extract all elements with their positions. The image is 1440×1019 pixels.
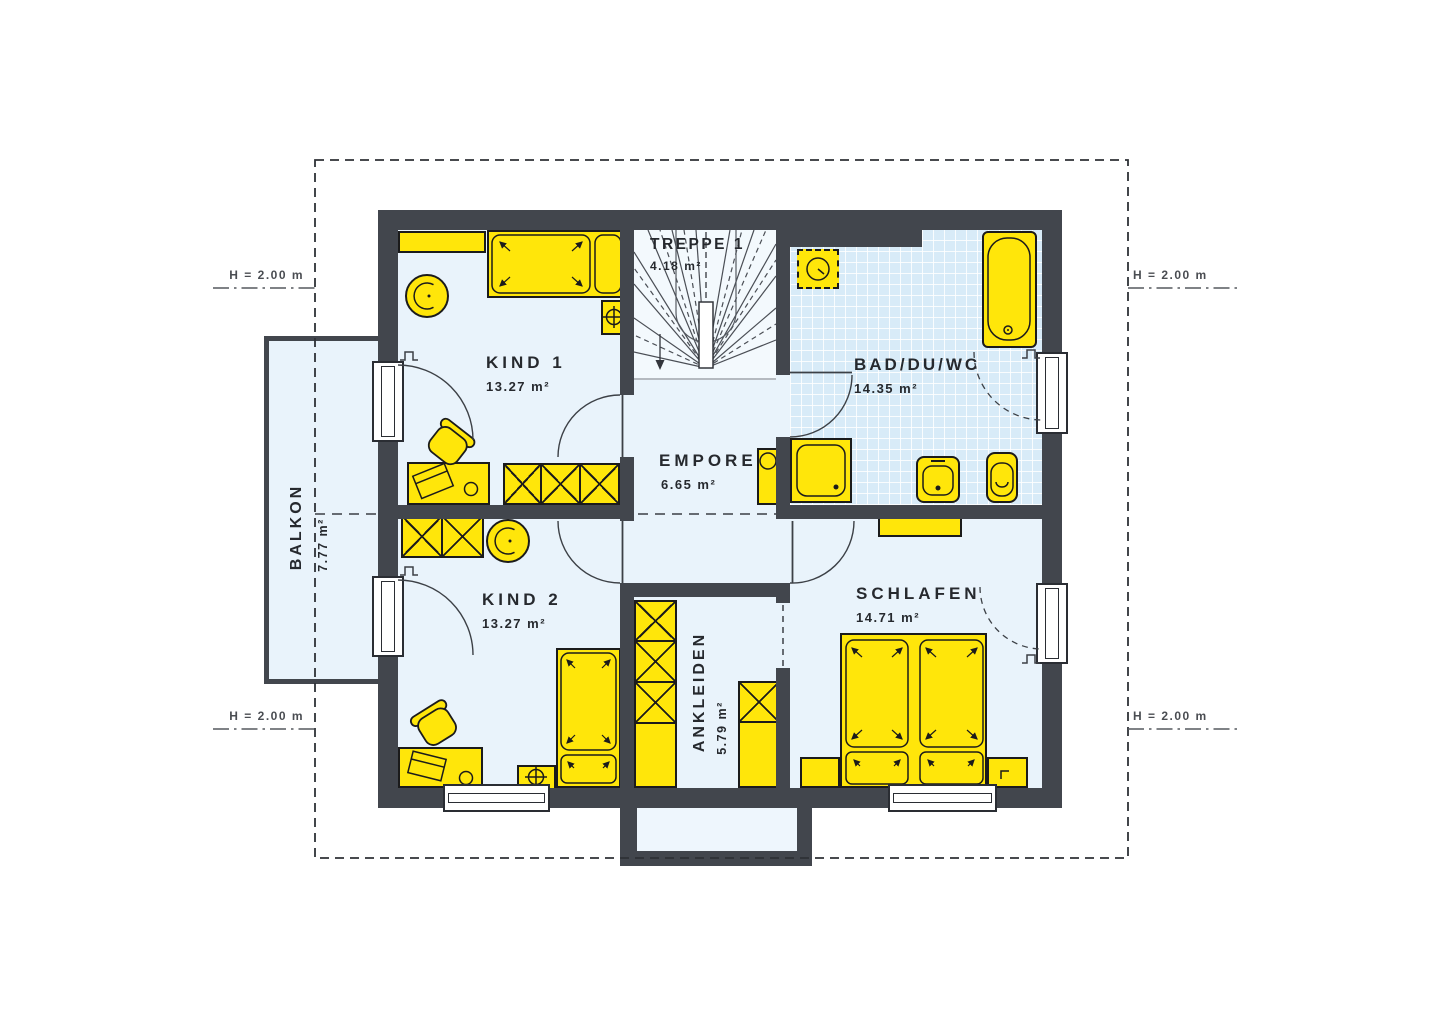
wall-kind-divider bbox=[378, 505, 620, 519]
floor-plan: TREPPE 1 4.18 m² KIND 1 13.27 m² BAD/DU/… bbox=[0, 0, 1440, 1019]
wall-outer-top bbox=[378, 210, 1062, 230]
chimney-inner bbox=[637, 808, 797, 851]
kind2-window-bottom bbox=[443, 784, 550, 812]
wall-ankleiden-left bbox=[620, 597, 634, 788]
room-label-kind1: KIND 1 bbox=[486, 353, 566, 373]
wall-ankleiden-top bbox=[620, 583, 790, 597]
schlafen-double-bed bbox=[840, 633, 987, 788]
wall-stair-left bbox=[620, 210, 634, 395]
bath-skylight bbox=[797, 249, 839, 289]
toilet bbox=[986, 452, 1018, 503]
room-area-empore: 6.65 m² bbox=[661, 477, 716, 492]
wall-south-divider bbox=[776, 505, 1042, 519]
wall-empore-left-mid bbox=[620, 457, 634, 521]
room-label-ankleiden: ANKLEIDEN bbox=[691, 632, 709, 752]
height-label-bottom-left: H = 2.00 m bbox=[212, 709, 304, 723]
room-area-bad: 14.35 m² bbox=[854, 381, 918, 396]
kind1-desk bbox=[407, 462, 490, 505]
room-area-treppe: 4.18 m² bbox=[650, 259, 702, 273]
kind1-bed bbox=[487, 230, 627, 298]
kind2-desk bbox=[398, 747, 483, 788]
height-label-top-right: H = 2.00 m bbox=[1133, 268, 1208, 282]
schlafen-shelf bbox=[878, 516, 962, 537]
shower bbox=[790, 438, 852, 503]
kind2-bed bbox=[556, 648, 621, 788]
wall-ankleiden-schlafen-lower bbox=[776, 668, 790, 788]
room-area-ankleiden: 5.79 m² bbox=[715, 701, 729, 755]
schlafen-window-right bbox=[1036, 583, 1068, 664]
wall-bath-top-thick bbox=[788, 210, 922, 247]
room-area-schlafen: 14.71 m² bbox=[856, 610, 920, 625]
kind1-balcony-door bbox=[372, 361, 404, 442]
kind1-shelf bbox=[398, 231, 486, 253]
kind2-balcony-door bbox=[372, 576, 404, 657]
washbasin bbox=[916, 456, 960, 503]
schlafen-window-bottom bbox=[888, 784, 997, 812]
bath-window bbox=[1036, 352, 1068, 434]
room-label-empore: EMPORE bbox=[659, 451, 757, 471]
room-label-bad: BAD/DU/WC bbox=[854, 355, 980, 375]
room-label-kind2: KIND 2 bbox=[482, 590, 562, 610]
room-label-schlafen: SCHLAFEN bbox=[856, 584, 981, 604]
room-area-kind1: 13.27 m² bbox=[486, 379, 550, 394]
schlafen-nightstand-left bbox=[800, 757, 840, 788]
room-label-balkon: BALKON bbox=[288, 484, 306, 570]
wall-outer-right bbox=[1042, 210, 1062, 808]
height-label-bottom-right: H = 2.00 m bbox=[1133, 709, 1208, 723]
room-label-treppe: TREPPE 1 bbox=[650, 236, 745, 254]
room-area-balkon: 7.77 m² bbox=[316, 518, 330, 572]
wall-ankleiden-schlafen-upper bbox=[776, 583, 790, 603]
height-label-top-left: H = 2.00 m bbox=[212, 268, 304, 282]
bathtub bbox=[982, 231, 1037, 348]
room-area-kind2: 13.27 m² bbox=[482, 616, 546, 631]
